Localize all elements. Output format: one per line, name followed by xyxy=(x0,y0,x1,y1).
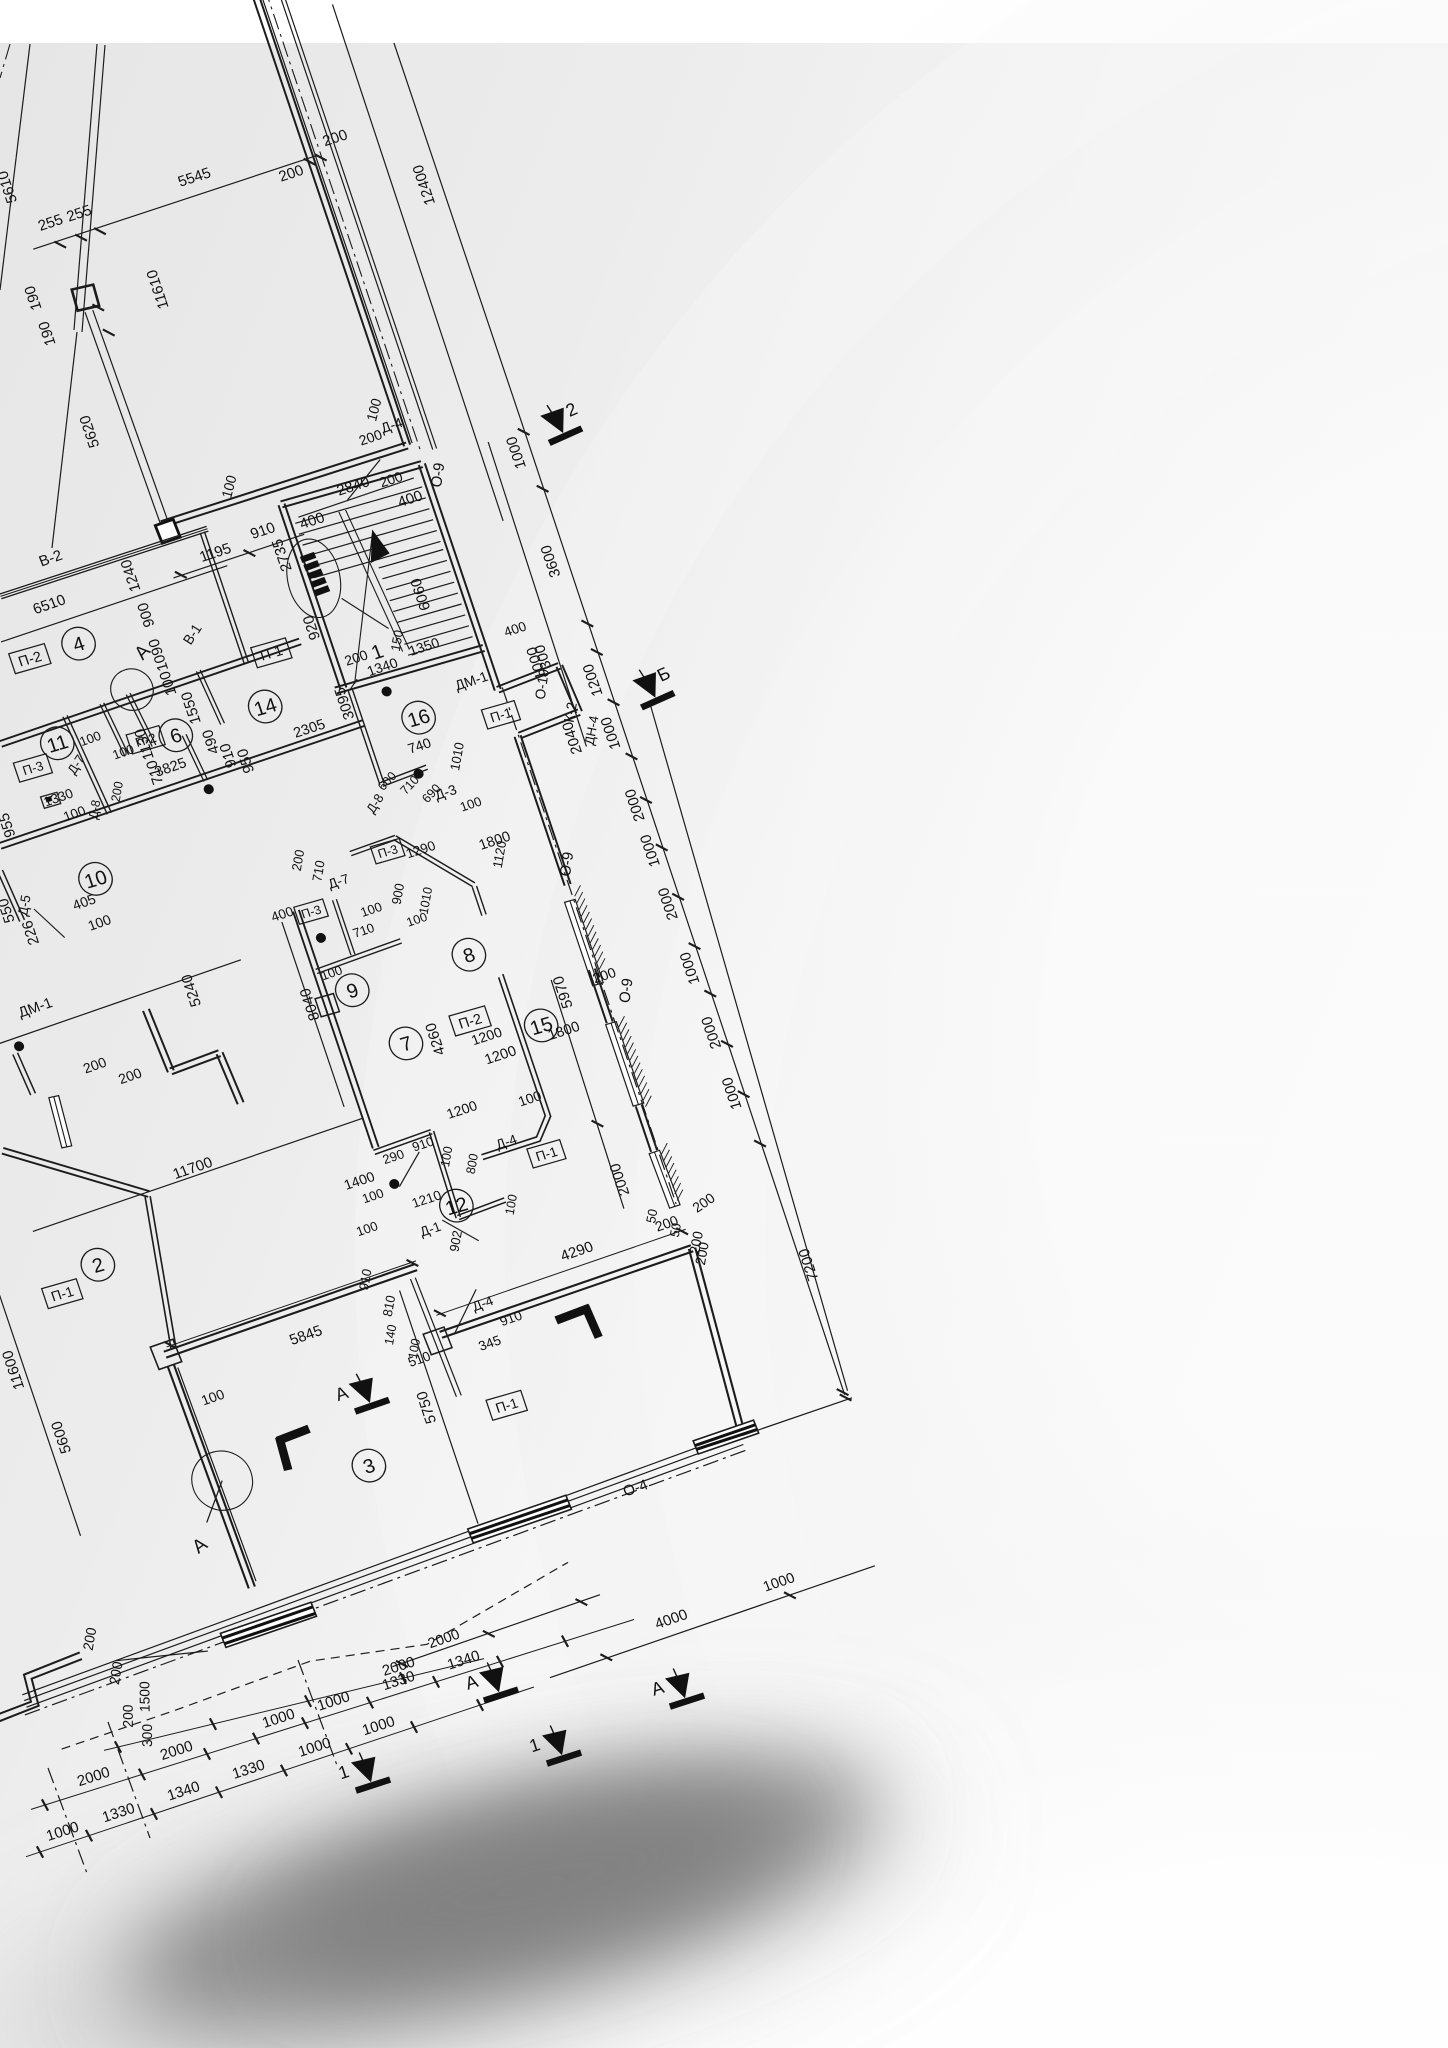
svg-text:О-9: О-9 xyxy=(616,977,636,1004)
svg-text:1500: 1500 xyxy=(136,1681,152,1712)
svg-text:К-2: К-2 xyxy=(561,700,581,723)
svg-text:О-9: О-9 xyxy=(557,851,577,878)
svg-text:300: 300 xyxy=(139,1723,155,1747)
svg-text:О-9: О-9 xyxy=(428,462,448,489)
